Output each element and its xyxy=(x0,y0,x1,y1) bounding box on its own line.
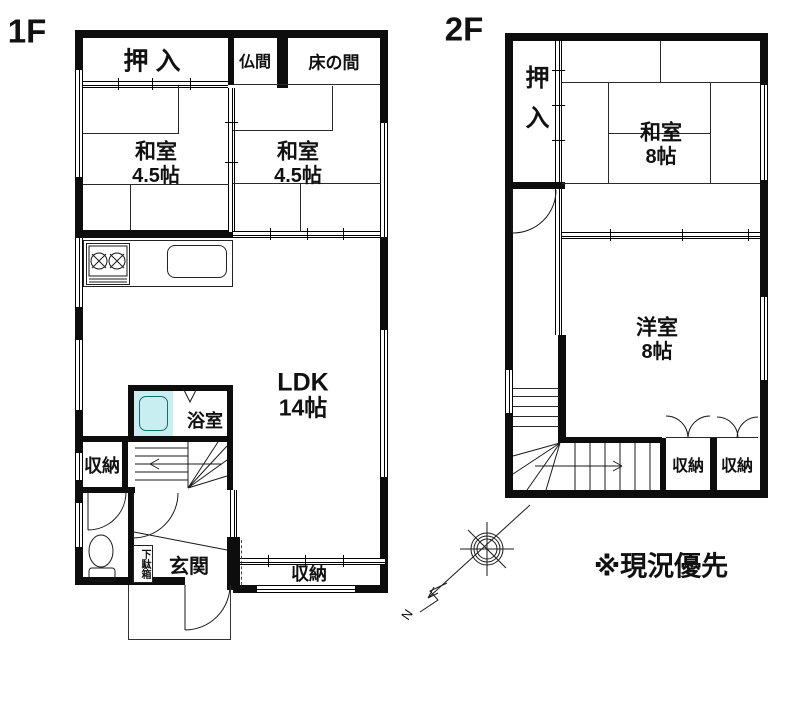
wall-stairs xyxy=(227,436,233,490)
wall-left-1f xyxy=(75,30,83,70)
tatami-line xyxy=(562,183,760,184)
wall-storage-2f xyxy=(660,438,666,490)
fusuma-oshiire xyxy=(83,81,228,88)
window xyxy=(75,230,83,307)
fusuma-washitsu-divider xyxy=(228,88,235,232)
storage-front-line xyxy=(666,437,758,438)
wall-bottom-1f xyxy=(355,585,388,593)
stair-tread xyxy=(513,416,559,417)
room-label-oshiire-1f: 押 入 xyxy=(124,50,181,75)
tick-mark xyxy=(610,229,611,241)
tick-mark xyxy=(552,105,565,106)
room-label-getabako: 下駄箱 xyxy=(139,549,149,579)
window xyxy=(505,370,513,413)
tatami-line xyxy=(83,133,178,134)
room-label-oshiire-2f: 押入 xyxy=(522,65,546,145)
window xyxy=(75,70,83,177)
wall-stairwell-h xyxy=(558,437,662,443)
tatami-line xyxy=(562,82,760,83)
wall-top-2f xyxy=(505,33,768,41)
room-label-butsuma: 仏間 xyxy=(239,55,271,71)
tick-mark xyxy=(268,555,269,567)
storage-double-doors xyxy=(666,416,758,438)
room-label-washitsu-left: 和室 xyxy=(135,142,177,163)
wall-bottom-1f xyxy=(233,585,257,593)
tick-mark xyxy=(190,78,191,90)
wall-left-1f xyxy=(75,177,83,230)
tatami-line xyxy=(300,184,301,232)
wall-washitsu-ldk xyxy=(75,230,233,238)
tick-mark xyxy=(552,140,565,141)
tick-mark xyxy=(118,78,119,90)
window xyxy=(380,330,388,477)
tick-mark xyxy=(552,70,565,71)
dashed-partition xyxy=(241,540,242,585)
tick-mark xyxy=(748,229,749,241)
wall-left-1f xyxy=(75,410,83,453)
window xyxy=(760,297,768,380)
window xyxy=(75,503,83,547)
tatami-line xyxy=(233,130,332,131)
wall-left-1f xyxy=(75,307,83,340)
stair-tread xyxy=(513,406,559,407)
tatami-line xyxy=(130,185,131,231)
room-label-washitsu-right: 和室 xyxy=(277,142,319,163)
wall-right-2f xyxy=(760,180,768,297)
oshiire-door-arc-2f xyxy=(512,190,556,233)
room-label-youshitsu: 洋室 xyxy=(636,318,678,339)
room-label-washitsu-2f: 和室 xyxy=(640,123,682,144)
tatami-line xyxy=(660,41,661,82)
kitchen-sink xyxy=(167,245,227,278)
wall-storage-divider-2f xyxy=(710,438,717,490)
tick-mark xyxy=(682,229,683,241)
tick-mark xyxy=(152,78,153,90)
window xyxy=(75,453,83,480)
room-label-storage-bottom: 収納 xyxy=(291,565,327,583)
stair-tread xyxy=(513,426,559,427)
floor1-title: 1F xyxy=(8,15,47,48)
room-label-storage1-2f: 収納 xyxy=(672,459,704,475)
wall-corner-1f xyxy=(227,537,240,590)
wall-left-2f xyxy=(505,33,513,370)
room-label-genkan: 玄関 xyxy=(169,557,209,577)
stairs-1f xyxy=(135,442,227,488)
wall-bathroom xyxy=(128,436,233,442)
room-size-ldk: 14帖 xyxy=(279,397,328,420)
floor2-title: 2F xyxy=(445,13,484,46)
window xyxy=(380,123,388,237)
room-label-ldk: LDK xyxy=(277,371,328,396)
hall-youshitsu-sliding-door xyxy=(555,238,562,335)
bathtub xyxy=(139,396,168,431)
room-size-washitsu-left: 4.5帖 xyxy=(132,166,180,186)
room-label-tokonoma: 床の間 xyxy=(309,55,360,72)
wall-storage-stairs xyxy=(122,436,128,490)
compass-rose xyxy=(420,505,530,612)
room-label-storage2-2f: 収納 xyxy=(721,459,753,475)
room-size-youshitsu: 8帖 xyxy=(641,342,672,362)
room-size-washitsu-2f: 8帖 xyxy=(645,147,676,167)
tick-mark xyxy=(343,555,344,567)
wall-toilet-top xyxy=(75,487,135,493)
wall-right-2f xyxy=(760,33,768,85)
tatami-line xyxy=(332,86,333,131)
tatami-line xyxy=(178,86,179,134)
wall-bottom-2f xyxy=(505,490,768,498)
fusuma-oshiire-2f xyxy=(555,41,562,182)
stair-tread xyxy=(513,388,559,389)
tick-mark xyxy=(270,228,271,240)
tokonoma-edge xyxy=(234,84,380,85)
stairs-2f xyxy=(513,443,650,490)
window xyxy=(75,340,83,410)
tick-mark xyxy=(225,162,238,163)
window xyxy=(257,585,355,593)
floorplan-canvas: N 1F 押 入 仏間 床の間 和室 4.5帖 和室 4.5帖 LDK 14帖 … xyxy=(0,0,790,701)
stove xyxy=(86,243,130,285)
wall-oshiire-2f xyxy=(505,182,565,189)
wall-top-1f xyxy=(75,30,388,38)
wall-right-2f xyxy=(760,380,768,498)
note-genkyo-yusen: ※現況優先 xyxy=(594,554,728,581)
wall-stairwell-v xyxy=(558,335,566,443)
wall-right-1f xyxy=(380,477,388,593)
wall-bathroom xyxy=(227,385,233,442)
room-size-washitsu-right: 4.5帖 xyxy=(274,166,322,186)
tick-mark xyxy=(225,122,238,123)
stair-tread xyxy=(513,396,559,397)
entrance-porch xyxy=(128,585,231,640)
room-label-bathroom: 浴室 xyxy=(187,412,223,430)
room-label-storage-left: 収納 xyxy=(84,457,120,475)
wall-right-1f xyxy=(380,237,388,330)
compass-north-label: N xyxy=(398,606,416,622)
tick-mark xyxy=(307,228,308,240)
hall-door-arc xyxy=(133,493,178,538)
toilet xyxy=(89,535,115,581)
window xyxy=(760,85,768,180)
hall-washitsu-divider xyxy=(555,189,562,238)
wall-left-2f xyxy=(505,413,513,498)
toilet-door-arc xyxy=(88,492,126,530)
wall-storage-top xyxy=(75,436,128,442)
hall-ldk-sliding-door xyxy=(230,490,237,537)
tokobashira-post xyxy=(277,38,288,88)
wall-right-1f xyxy=(380,30,388,123)
wall-butsuma-divider xyxy=(228,38,234,85)
tick-mark xyxy=(343,228,344,240)
washitsu-youshitsu-divider xyxy=(562,232,760,239)
